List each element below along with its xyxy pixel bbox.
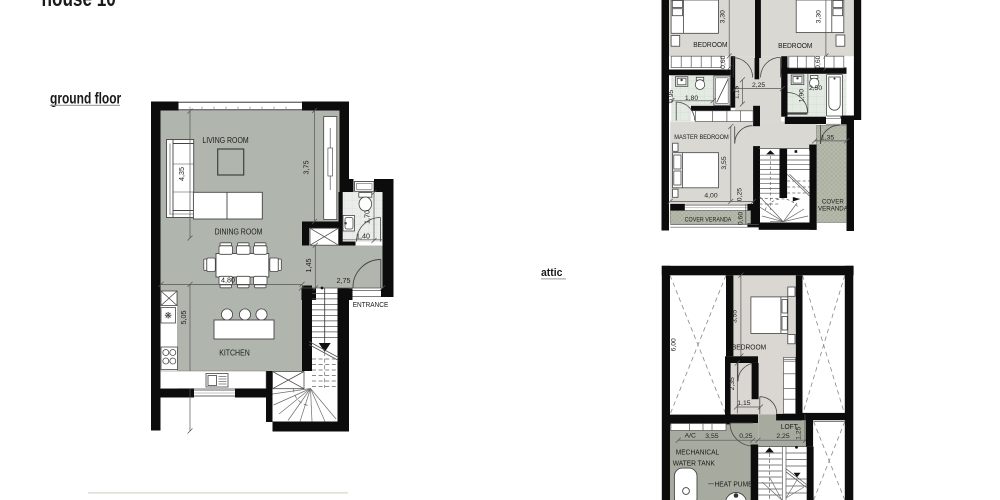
svg-text:ground floor: ground floor — [50, 89, 122, 107]
svg-text:house 10: house 10 — [42, 0, 116, 12]
svg-text:KITCHEN: KITCHEN — [219, 348, 250, 358]
svg-text:2,50: 2,50 — [809, 85, 822, 92]
svg-text:BEDROOM: BEDROOM — [778, 43, 813, 50]
svg-text:0,25: 0,25 — [737, 188, 744, 201]
svg-text:COVER VERANDA: COVER VERANDA — [685, 217, 732, 223]
svg-text:1,35: 1,35 — [821, 135, 834, 142]
svg-text:BEDROOM: BEDROOM — [693, 42, 728, 49]
svg-text:5,05: 5,05 — [179, 311, 188, 325]
svg-text:0,60: 0,60 — [738, 212, 745, 225]
svg-text:1,45: 1,45 — [304, 259, 313, 273]
svg-text:VERANDA: VERANDA — [818, 206, 849, 213]
svg-text:MASTER BEDROOM: MASTER BEDROOM — [674, 134, 728, 142]
svg-text:2,25: 2,25 — [752, 82, 765, 89]
svg-text:2,75: 2,75 — [337, 276, 351, 285]
svg-text:3,55: 3,55 — [721, 156, 728, 169]
svg-text:2,25: 2,25 — [776, 433, 789, 440]
svg-text:COVER: COVER — [822, 198, 845, 205]
svg-text:4,35: 4,35 — [177, 167, 186, 181]
svg-text:0,25: 0,25 — [739, 433, 752, 440]
svg-text:0,60: 0,60 — [720, 55, 727, 68]
svg-text:4,80: 4,80 — [221, 275, 235, 284]
svg-text:3,30: 3,30 — [815, 10, 822, 23]
svg-text:2,35: 2,35 — [729, 377, 736, 390]
svg-text:3,55: 3,55 — [705, 433, 718, 440]
svg-text:1,15: 1,15 — [737, 400, 750, 407]
svg-text:WATER TANK: WATER TANK — [673, 461, 716, 468]
svg-text:attic: attic — [541, 267, 563, 279]
svg-text:6,00: 6,00 — [670, 338, 677, 351]
svg-text:4,00: 4,00 — [704, 192, 717, 199]
svg-text:0,60: 0,60 — [815, 55, 822, 68]
svg-text:DINING ROOM: DINING ROOM — [215, 227, 263, 237]
svg-text:1,25: 1,25 — [795, 426, 802, 439]
svg-text:3,75: 3,75 — [302, 161, 311, 175]
svg-text:3,30: 3,30 — [720, 10, 727, 23]
svg-text:HEAT PUMB: HEAT PUMB — [714, 482, 753, 489]
svg-text:3,55: 3,55 — [731, 310, 738, 323]
svg-text:1,15: 1,15 — [734, 86, 741, 99]
svg-text:1,90: 1,90 — [799, 89, 806, 102]
svg-text:A/C: A/C — [685, 432, 696, 439]
svg-text:❋: ❋ — [164, 311, 172, 321]
svg-text:MECHANICAL: MECHANICAL — [676, 449, 720, 456]
svg-text:ENTRANCE: ENTRANCE — [353, 302, 389, 309]
svg-text:LIVING ROOM: LIVING ROOM — [202, 136, 248, 146]
svg-text:BEDROOM: BEDROOM — [732, 344, 767, 351]
